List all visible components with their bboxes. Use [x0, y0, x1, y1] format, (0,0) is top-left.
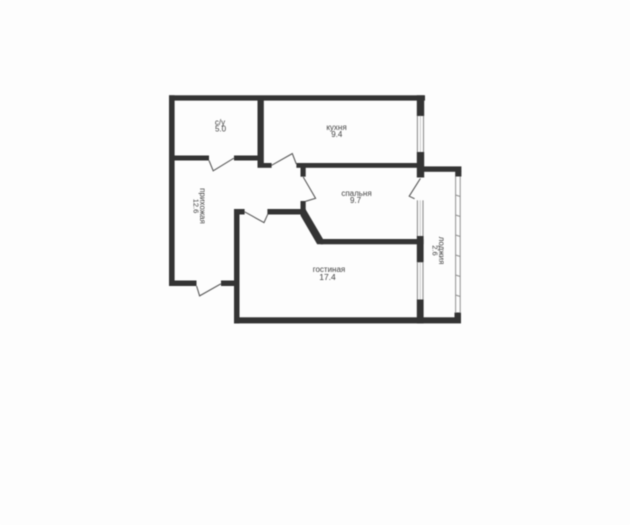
svg-text:5.0: 5.0: [215, 125, 227, 134]
svg-text:9.7: 9.7: [350, 196, 362, 205]
svg-text:9.4: 9.4: [331, 130, 343, 139]
svg-text:12.6: 12.6: [191, 199, 200, 214]
svg-text:17.4: 17.4: [319, 272, 336, 282]
svg-text:2.6: 2.6: [431, 245, 440, 255]
